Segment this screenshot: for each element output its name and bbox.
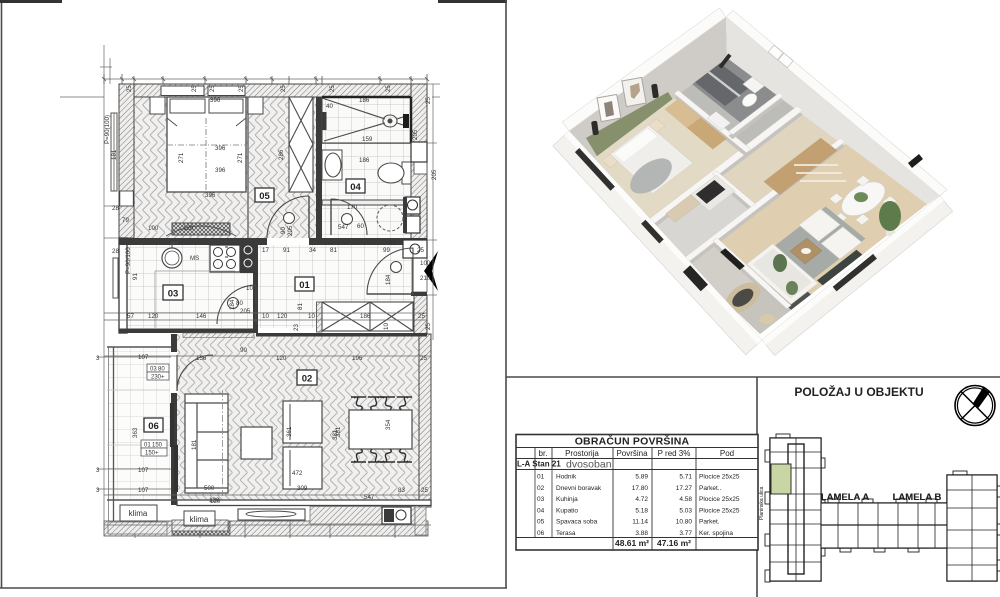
svg-text:Kuhinja: Kuhinja	[556, 496, 578, 503]
svg-text:396: 396	[215, 145, 226, 152]
svg-text:210: 210	[420, 275, 431, 282]
svg-text:01: 01	[537, 474, 545, 481]
svg-text:363: 363	[132, 427, 139, 438]
svg-text:Parket.: Parket.	[699, 519, 720, 526]
svg-text:181: 181	[191, 439, 198, 450]
svg-text:99: 99	[383, 247, 390, 254]
svg-text:186: 186	[359, 97, 370, 104]
svg-text:LAMELA A: LAMELA A	[821, 492, 870, 503]
svg-text:25: 25	[386, 85, 392, 92]
svg-text:5.18: 5.18	[635, 507, 648, 514]
svg-text:79: 79	[122, 217, 129, 224]
svg-text:120: 120	[277, 313, 288, 320]
svg-text:Prostorija: Prostorija	[565, 449, 599, 458]
svg-text:10: 10	[308, 313, 315, 320]
svg-text:81: 81	[297, 303, 304, 310]
svg-text:25: 25	[425, 323, 432, 330]
svg-text:91: 91	[389, 240, 396, 247]
svg-text:Parket..: Parket..	[699, 485, 722, 492]
svg-text:150: 150	[152, 443, 163, 449]
svg-text:L-A Stan 21: L-A Stan 21	[517, 460, 561, 469]
svg-text:107: 107	[138, 467, 149, 474]
svg-text:396: 396	[205, 192, 216, 199]
svg-text:25: 25	[420, 355, 427, 362]
svg-text:Spavaca soba: Spavaca soba	[556, 519, 598, 526]
svg-text:Pod: Pod	[720, 449, 734, 458]
svg-text:Plocice 25x25: Plocice 25x25	[699, 474, 740, 481]
svg-text:47.16 m²: 47.16 m²	[657, 538, 691, 548]
svg-text:05: 05	[259, 191, 270, 202]
svg-text:17.27: 17.27	[676, 485, 693, 492]
svg-text:11.14: 11.14	[632, 519, 648, 526]
svg-text:309: 309	[297, 485, 308, 492]
svg-text:03: 03	[168, 289, 179, 300]
svg-text:181: 181	[111, 149, 118, 160]
svg-text:80: 80	[236, 300, 243, 307]
svg-text:LAMELA B: LAMELA B	[893, 492, 942, 503]
svg-text:186: 186	[359, 157, 370, 164]
svg-text:Dnevni boravak: Dnevni boravak	[556, 485, 602, 492]
svg-text:396: 396	[215, 167, 226, 174]
svg-text:271: 271	[237, 152, 244, 163]
svg-text:MS: MS	[190, 255, 199, 262]
svg-text:547: 547	[364, 494, 375, 501]
svg-text:90: 90	[280, 227, 287, 234]
svg-text:Hodnik: Hodnik	[556, 474, 577, 481]
svg-text:205: 205	[240, 308, 251, 315]
svg-text:4.58: 4.58	[679, 496, 692, 503]
svg-text:Plocice 25x25: Plocice 25x25	[699, 496, 740, 503]
svg-text:10: 10	[246, 285, 253, 292]
svg-text:25: 25	[127, 85, 133, 92]
svg-text:03: 03	[537, 496, 545, 503]
svg-text:10: 10	[262, 313, 269, 320]
svg-text:34: 34	[309, 247, 316, 254]
svg-text:547: 547	[338, 224, 349, 231]
svg-text:02: 02	[302, 374, 313, 385]
svg-text:P red 3%: P red 3%	[658, 449, 691, 458]
svg-text:205: 205	[412, 129, 419, 140]
svg-text:25: 25	[421, 487, 428, 494]
svg-text:25: 25	[330, 85, 336, 92]
svg-text:120: 120	[276, 355, 287, 362]
svg-text:POLOŽAJ U OBJEKTU: POLOŽAJ U OBJEKTU	[794, 384, 923, 399]
svg-text:klima: klima	[190, 515, 209, 524]
svg-text:01: 01	[144, 443, 151, 449]
svg-text:28: 28	[112, 248, 119, 255]
svg-text:3.77: 3.77	[679, 530, 692, 537]
svg-text:25: 25	[239, 85, 245, 92]
svg-text:01: 01	[299, 280, 310, 291]
svg-text:90: 90	[240, 347, 247, 354]
svg-text:3: 3	[96, 355, 100, 362]
svg-text:Kupatio: Kupatio	[556, 507, 578, 514]
svg-text:91: 91	[132, 273, 139, 280]
svg-text:472: 472	[292, 470, 303, 477]
svg-text:100: 100	[148, 225, 159, 232]
svg-text:25: 25	[192, 85, 198, 92]
svg-text:dvosoban: dvosoban	[566, 459, 612, 471]
svg-text:06: 06	[537, 530, 545, 537]
svg-text:3: 3	[96, 487, 100, 494]
svg-text:25: 25	[425, 97, 432, 104]
svg-text:156: 156	[196, 355, 207, 362]
svg-text:23: 23	[293, 324, 300, 331]
svg-text:25: 25	[210, 85, 216, 92]
svg-text:Površina: Površina	[616, 449, 648, 458]
svg-text:4.72: 4.72	[635, 496, 648, 503]
svg-text:Plocice 25x25: Plocice 25x25	[699, 507, 740, 514]
svg-text:OBRAČUN POVRŠINA: OBRAČUN POVRŠINA	[575, 435, 690, 448]
svg-text:186: 186	[360, 313, 371, 320]
svg-text:120: 120	[148, 313, 159, 320]
svg-text:81: 81	[330, 247, 337, 254]
svg-text:25: 25	[418, 313, 425, 320]
svg-text:Terasa: Terasa	[556, 530, 576, 537]
svg-text:10: 10	[383, 323, 390, 330]
svg-text:48.61 m²: 48.61 m²	[615, 538, 649, 548]
svg-text:03: 03	[150, 367, 157, 373]
svg-text:3.88: 3.88	[635, 530, 648, 537]
svg-text:10.80: 10.80	[676, 519, 693, 526]
svg-text:83: 83	[398, 487, 405, 494]
svg-text:381: 381	[335, 426, 342, 437]
svg-text:184: 184	[229, 299, 236, 310]
svg-text:120: 120	[183, 225, 194, 232]
svg-text:170: 170	[347, 204, 358, 211]
svg-text:91: 91	[283, 247, 290, 254]
svg-text:271: 271	[178, 152, 185, 163]
svg-text:60: 60	[357, 223, 364, 230]
svg-text:205: 205	[431, 169, 438, 180]
svg-text:P=90(100): P=90(100)	[104, 115, 111, 144]
svg-text:196: 196	[352, 355, 363, 362]
svg-text:80: 80	[158, 367, 165, 373]
svg-text:04: 04	[350, 182, 361, 193]
svg-text:br.: br.	[539, 449, 548, 458]
svg-text:3: 3	[96, 467, 100, 474]
svg-text:5.71: 5.71	[679, 474, 692, 481]
svg-text:P=90/100: P=90/100	[125, 247, 132, 274]
svg-text:5.89: 5.89	[635, 474, 648, 481]
svg-text:Ker. spojina: Ker. spojina	[699, 530, 733, 537]
svg-text:25: 25	[417, 247, 424, 254]
svg-text:40: 40	[326, 103, 333, 110]
svg-text:184: 184	[385, 274, 392, 285]
svg-text:107: 107	[138, 487, 149, 494]
svg-text:230+: 230+	[151, 375, 165, 381]
svg-text:02: 02	[537, 485, 545, 492]
svg-text:57: 57	[127, 313, 134, 320]
svg-text:205: 205	[287, 225, 294, 236]
svg-text:146: 146	[196, 313, 207, 320]
svg-text:500: 500	[204, 485, 215, 492]
svg-text:04: 04	[537, 507, 545, 514]
svg-text:107: 107	[138, 354, 149, 361]
svg-text:286: 286	[278, 149, 285, 160]
svg-text:17.80: 17.80	[632, 485, 649, 492]
svg-text:17: 17	[262, 247, 269, 254]
svg-text:396: 396	[210, 97, 221, 104]
svg-text:28: 28	[112, 205, 119, 212]
svg-text:05: 05	[537, 519, 545, 526]
svg-text:06: 06	[148, 421, 159, 432]
svg-text:159: 159	[362, 136, 373, 143]
svg-text:361: 361	[286, 426, 293, 437]
svg-text:Planinska ulica: Planinska ulica	[759, 486, 765, 520]
svg-text:150+: 150+	[145, 451, 159, 457]
svg-text:100: 100	[420, 260, 431, 267]
svg-text:5.03: 5.03	[679, 507, 692, 514]
svg-text:120: 120	[210, 498, 221, 505]
svg-text:354: 354	[385, 419, 392, 430]
svg-text:25: 25	[281, 85, 287, 92]
svg-text:klima: klima	[129, 509, 148, 518]
